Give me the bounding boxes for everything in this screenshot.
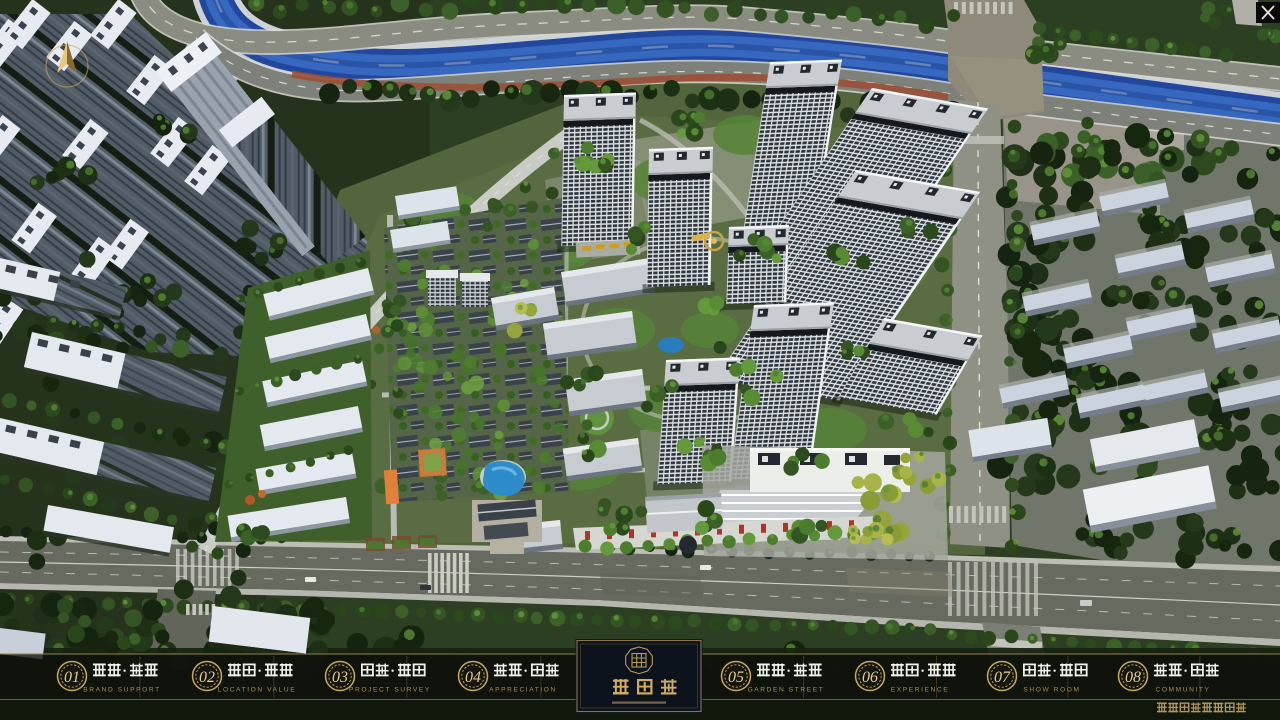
svg-text:BRAND SUPPORT: BRAND SUPPORT [83, 687, 160, 694]
svg-text:03: 03 [332, 669, 348, 686]
svg-text:05: 05 [728, 669, 744, 686]
svg-text:06: 06 [862, 669, 878, 686]
svg-text:PROJECT SURVEY: PROJECT SURVEY [349, 687, 431, 694]
svg-text:SHOW ROOM: SHOW ROOM [1023, 687, 1080, 694]
svg-text:04: 04 [465, 669, 481, 686]
svg-text:APPRECIATION: APPRECIATION [489, 687, 557, 694]
svg-text:GARDEN STREET: GARDEN STREET [748, 687, 825, 694]
svg-text:08: 08 [1125, 669, 1141, 686]
svg-text:EXPERIENCE: EXPERIENCE [891, 687, 950, 694]
svg-text:LOCATION VALUE: LOCATION VALUE [218, 687, 297, 694]
svg-text:01: 01 [64, 669, 80, 686]
svg-text:COMMUNITY: COMMUNITY [1155, 687, 1210, 694]
svg-text:07: 07 [994, 669, 1011, 686]
svg-text:02: 02 [199, 669, 215, 686]
